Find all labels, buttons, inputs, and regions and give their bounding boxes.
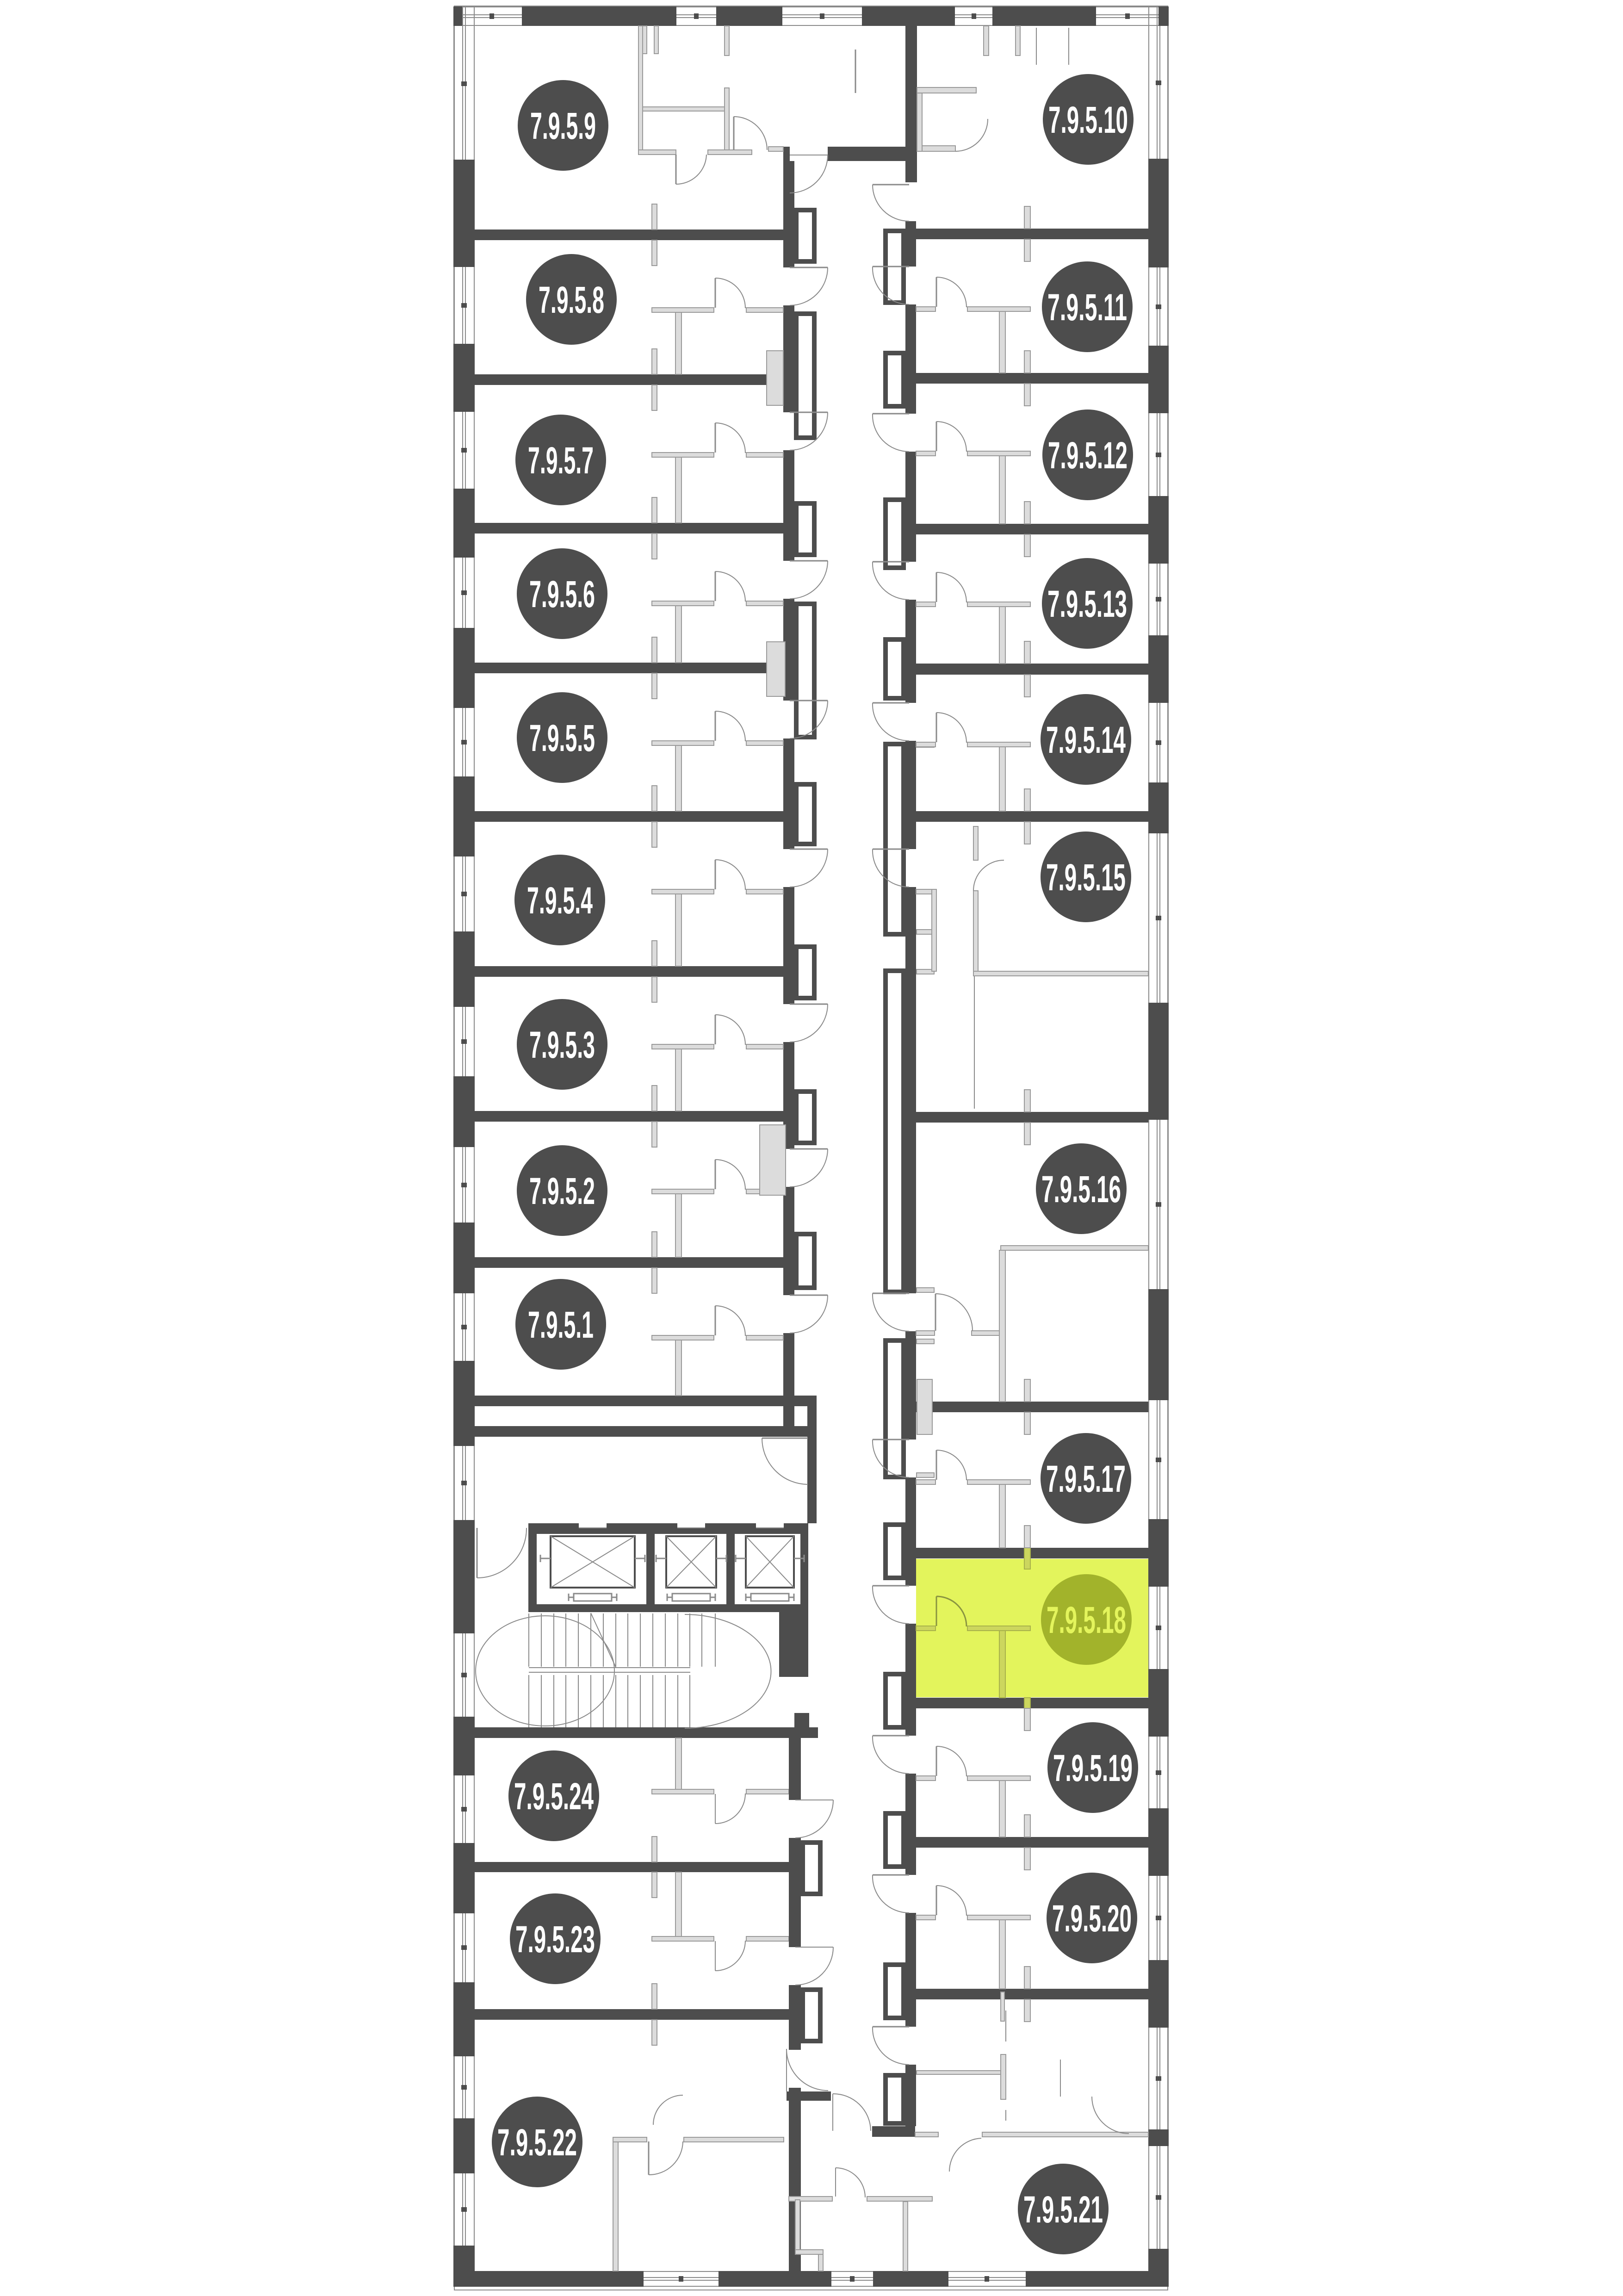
svg-text:7.9.5.18: 7.9.5.18 (1047, 1599, 1126, 1641)
svg-text:7.9.5.14: 7.9.5.14 (1046, 719, 1126, 761)
svg-text:7.9.5.9: 7.9.5.9 (530, 105, 596, 147)
svg-text:7.9.5.21: 7.9.5.21 (1023, 2189, 1103, 2231)
svg-text:7.9.5.20: 7.9.5.20 (1052, 1898, 1132, 1940)
svg-text:7.9.5.2: 7.9.5.2 (529, 1170, 595, 1212)
svg-text:7.9.5.16: 7.9.5.16 (1041, 1168, 1121, 1210)
svg-text:7.9.5.13: 7.9.5.13 (1047, 583, 1127, 625)
svg-text:7.9.5.23: 7.9.5.23 (515, 1918, 595, 1961)
svg-text:7.9.5.11: 7.9.5.11 (1047, 286, 1127, 329)
svg-text:7.9.5.7: 7.9.5.7 (528, 440, 594, 482)
svg-text:7.9.5.22: 7.9.5.22 (497, 2122, 577, 2164)
svg-text:7.9.5.17: 7.9.5.17 (1046, 1458, 1126, 1500)
svg-text:7.9.5.19: 7.9.5.19 (1053, 1747, 1133, 1789)
svg-text:7.9.5.4: 7.9.5.4 (527, 880, 593, 922)
svg-text:7.9.5.1: 7.9.5.1 (528, 1304, 594, 1346)
svg-text:7.9.5.6: 7.9.5.6 (529, 573, 595, 615)
svg-text:7.9.5.3: 7.9.5.3 (529, 1024, 595, 1066)
svg-text:7.9.5.5: 7.9.5.5 (529, 717, 595, 759)
svg-text:7.9.5.15: 7.9.5.15 (1046, 856, 1126, 899)
svg-text:7.9.5.8: 7.9.5.8 (539, 279, 604, 321)
svg-text:7.9.5.12: 7.9.5.12 (1048, 434, 1127, 477)
svg-text:7.9.5.10: 7.9.5.10 (1048, 99, 1128, 141)
svg-text:7.9.5.24: 7.9.5.24 (514, 1775, 594, 1818)
